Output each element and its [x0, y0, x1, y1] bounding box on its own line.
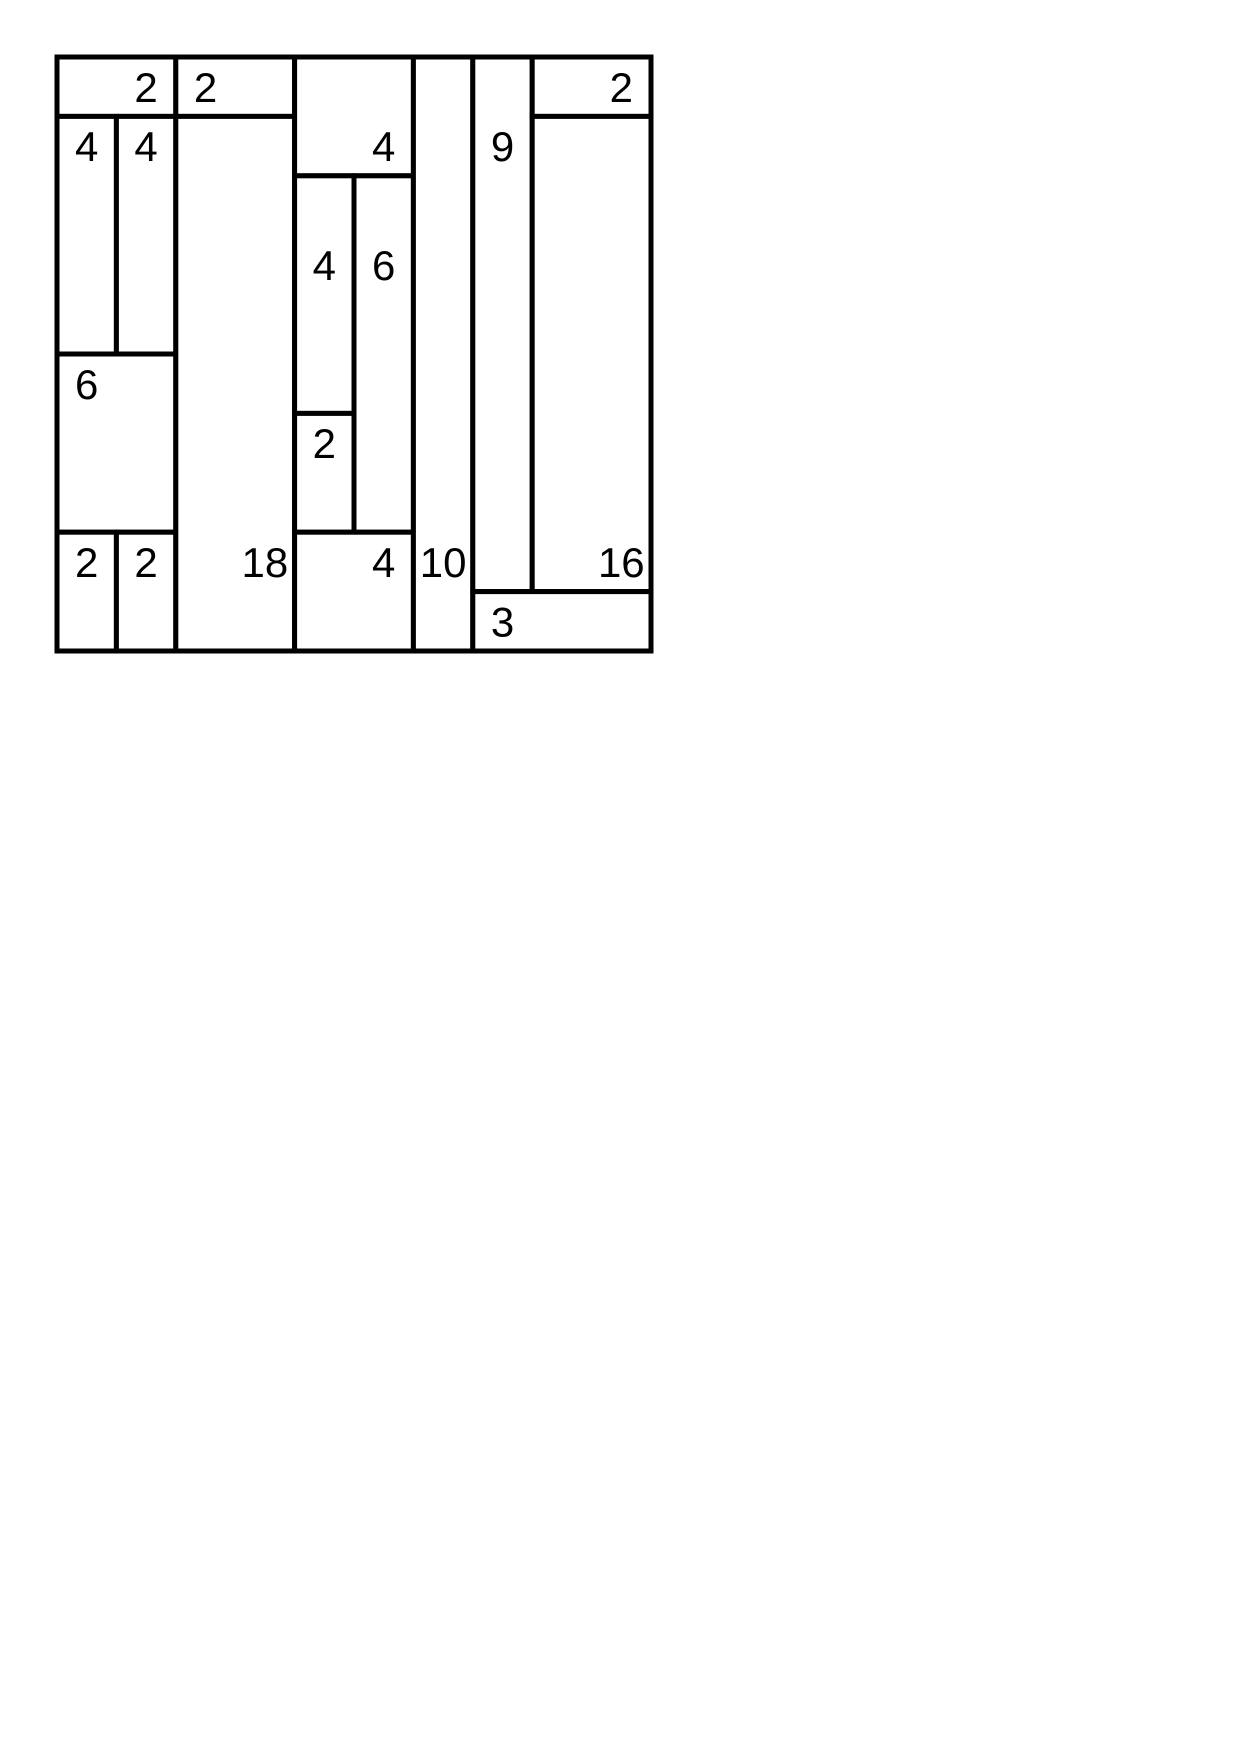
- puzzle-rect-8: [295, 57, 414, 176]
- clue-label-5: 2: [75, 539, 98, 586]
- clue-label-3: 4: [134, 123, 157, 170]
- clue-label-15: 2: [610, 64, 633, 111]
- clue-label-17: 3: [491, 598, 514, 645]
- clue-label-8: 4: [372, 123, 395, 170]
- puzzle-rect-0: [57, 57, 176, 116]
- clue-label-9: 4: [313, 242, 336, 289]
- clue-label-2: 4: [75, 123, 98, 170]
- puzzle-rect-15: [532, 57, 651, 116]
- page: 224462218446241092163: [0, 0, 1240, 1754]
- clue-label-0: 2: [134, 64, 157, 111]
- puzzle-rect-10: [354, 176, 413, 532]
- puzzle-rect-12: [295, 532, 414, 651]
- clue-label-12: 4: [372, 539, 395, 586]
- puzzle-rect-16: [532, 116, 651, 591]
- clue-label-13: 10: [420, 539, 467, 586]
- clue-label-6: 2: [134, 539, 157, 586]
- clue-label-1: 2: [194, 64, 217, 111]
- clue-label-4: 6: [75, 361, 98, 408]
- puzzle-rect-9: [295, 176, 354, 414]
- clue-label-7: 18: [242, 539, 289, 586]
- clue-label-16: 16: [598, 539, 645, 586]
- clue-label-14: 9: [491, 123, 514, 170]
- clue-label-11: 2: [313, 420, 336, 467]
- shikaku-board: 224462218446241092163: [0, 0, 1240, 1754]
- clue-label-10: 6: [372, 242, 395, 289]
